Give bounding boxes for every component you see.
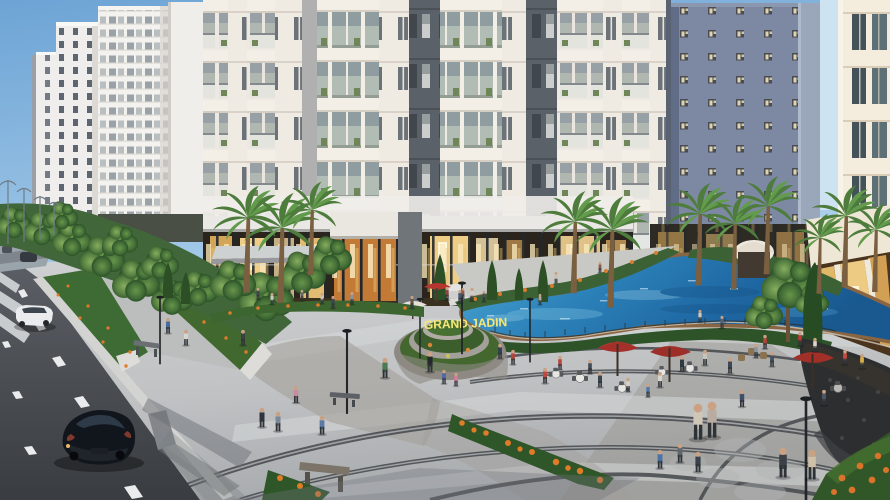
svg-text:GRAND JADIN: GRAND JADIN: [424, 315, 508, 332]
